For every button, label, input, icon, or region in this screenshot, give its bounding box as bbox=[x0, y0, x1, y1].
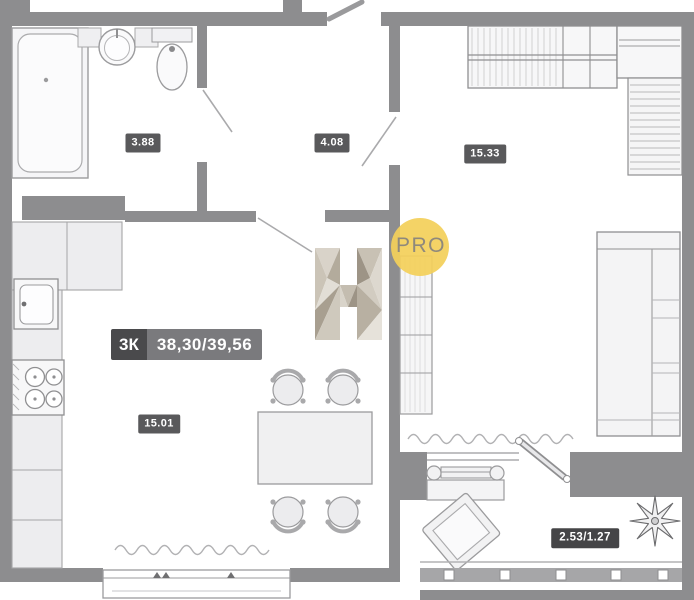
toilet-icon bbox=[152, 28, 192, 90]
chair-icon bbox=[325, 497, 360, 531]
balcony-window-icon bbox=[427, 453, 519, 460]
floor-plan: 3.88 4.08 15.33 15.01 2.53/1.27 3К 38,30… bbox=[0, 0, 694, 600]
kitchen-door-icon bbox=[258, 218, 312, 252]
kitchen-living-area-label: 15.01 bbox=[138, 415, 180, 434]
wardrobe-icon bbox=[468, 26, 617, 88]
living-radiator-icon bbox=[115, 546, 269, 555]
entrance-door-icon bbox=[329, 2, 362, 19]
chair-icon bbox=[270, 497, 305, 531]
total-area-label: 38,30/39,56 bbox=[147, 329, 262, 360]
bathtub-icon bbox=[12, 28, 88, 178]
watermark-pro-label: PRO bbox=[396, 234, 446, 258]
kitchen-sink-icon bbox=[14, 279, 58, 329]
bedroom-door-icon bbox=[362, 117, 396, 166]
apartment-summary-badge: 3К 38,30/39,56 bbox=[111, 329, 262, 360]
chair-icon bbox=[270, 371, 305, 405]
chair-icon bbox=[325, 371, 360, 405]
bathroom-door-icon bbox=[203, 90, 232, 132]
plant-icon bbox=[630, 496, 680, 546]
dining-table-icon bbox=[258, 412, 372, 484]
bathroom-area-label: 3.88 bbox=[125, 134, 160, 153]
corner-cabinet-icon bbox=[617, 26, 682, 78]
hallway-area-label: 4.08 bbox=[314, 134, 349, 153]
dresser-icon bbox=[628, 78, 682, 175]
balcony-door-icon bbox=[516, 438, 571, 483]
stove-icon bbox=[12, 360, 64, 415]
bedroom-radiator-icon bbox=[408, 435, 573, 444]
floor-plan-drawing bbox=[0, 0, 694, 600]
washbasin-icon bbox=[78, 28, 158, 65]
bedroom-area-label: 15.33 bbox=[464, 145, 506, 164]
bed-icon bbox=[597, 232, 680, 436]
balcony-area-label: 2.53/1.27 bbox=[551, 528, 619, 548]
rooms-count-label: 3К bbox=[111, 329, 147, 360]
bay-window-icon bbox=[103, 570, 290, 598]
shelf-unit-icon bbox=[400, 256, 432, 414]
armchair-icon bbox=[422, 492, 501, 571]
